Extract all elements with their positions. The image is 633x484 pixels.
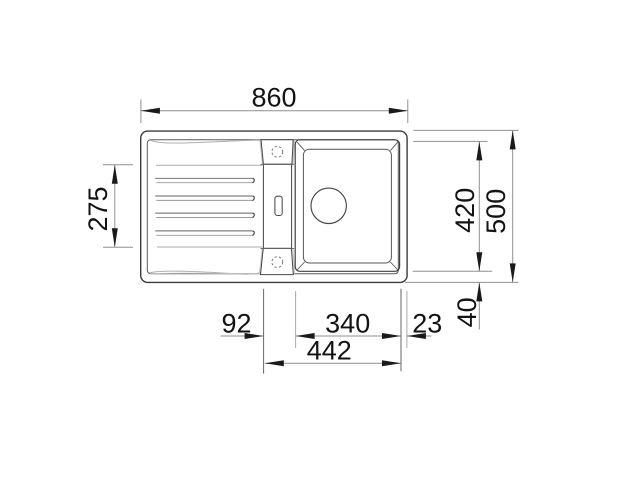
svg-text:420: 420 [450,188,480,233]
svg-text:442: 442 [307,335,352,365]
svg-text:860: 860 [251,83,296,113]
svg-text:275: 275 [83,186,113,231]
svg-text:40: 40 [452,297,482,327]
svg-text:92: 92 [221,308,251,338]
svg-text:340: 340 [325,308,370,338]
svg-text:500: 500 [481,189,511,234]
svg-text:23: 23 [412,308,442,338]
